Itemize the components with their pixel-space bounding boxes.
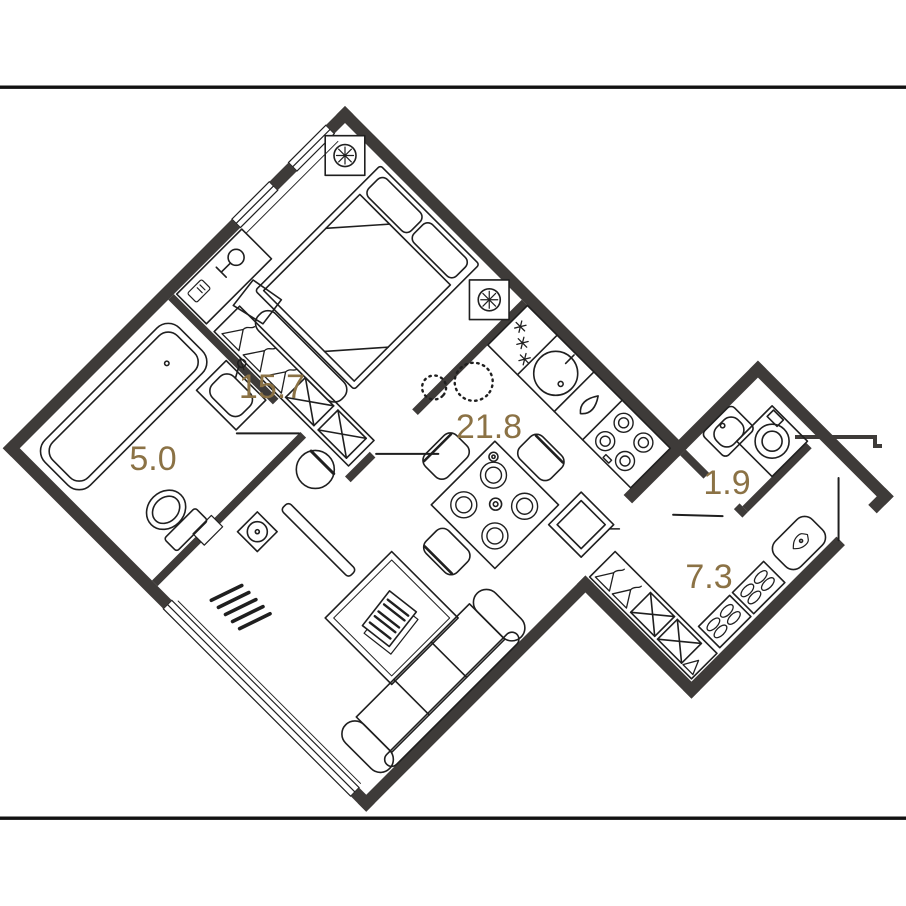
top-frame-line — [0, 86, 906, 89]
sofa-icon — [337, 584, 532, 779]
room-label-bedroom: 15.7 — [239, 368, 305, 406]
floor-plan-canvas: 15.7 5.0 21.8 1.9 7.3 — [0, 0, 906, 906]
room-label-wc: 1.9 — [703, 464, 750, 502]
phone-icon — [187, 279, 210, 302]
living-window — [163, 597, 362, 796]
radiator-icon — [211, 578, 270, 637]
bottom-frame-line — [0, 817, 906, 820]
curtain-line — [246, 141, 338, 233]
serving-table-icon — [549, 491, 620, 562]
floor-plan-page: 15.7 5.0 21.8 1.9 7.3 — [0, 0, 906, 906]
tv-bench-icon — [281, 502, 357, 578]
floor-lamp-icon — [238, 512, 278, 552]
room-label-bathroom: 5.0 — [129, 440, 176, 478]
room-label-living-kitchen: 21.8 — [456, 408, 522, 446]
magazine-icon — [359, 591, 421, 654]
dining-table-icon — [431, 441, 558, 568]
rug-icon — [325, 552, 458, 685]
dishwasher-icon — [577, 392, 602, 417]
room-label-hallway: 7.3 — [685, 558, 732, 596]
